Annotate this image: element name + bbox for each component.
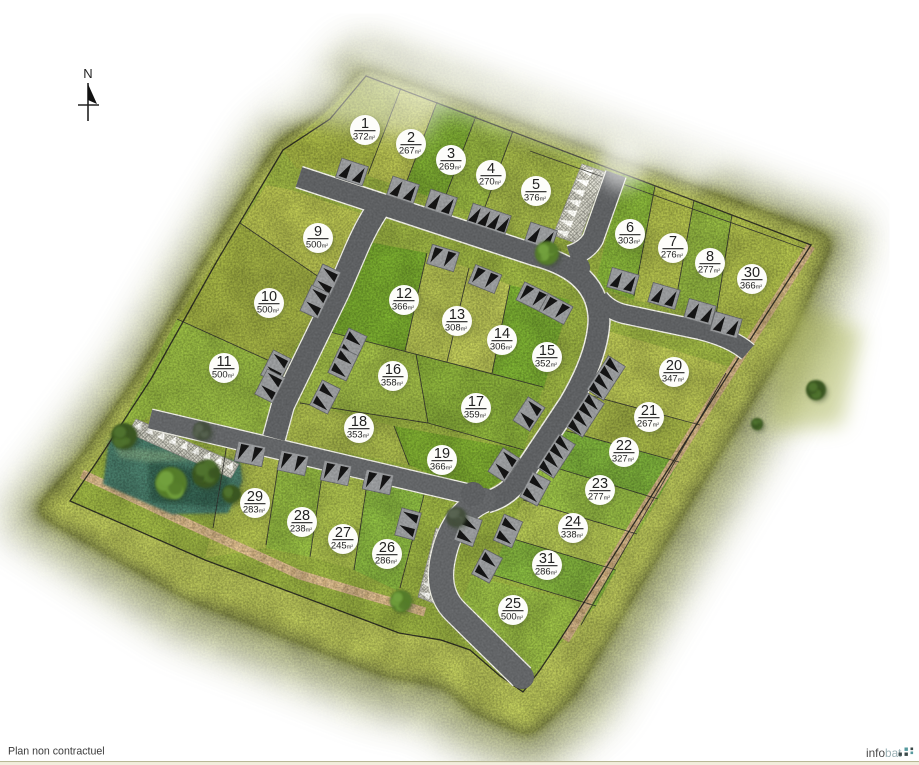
svg-text:27: 27 — [335, 525, 351, 541]
svg-text:15: 15 — [539, 343, 555, 359]
svg-text:26: 26 — [379, 540, 395, 556]
svg-text:Plan non contractuel: Plan non contractuel — [8, 746, 105, 758]
svg-text:4: 4 — [487, 161, 495, 177]
svg-text:21: 21 — [641, 403, 657, 419]
svg-text:infobat: infobat — [866, 746, 902, 760]
svg-text:19: 19 — [434, 446, 450, 462]
svg-text:17: 17 — [468, 394, 484, 410]
svg-text:20: 20 — [666, 358, 682, 374]
svg-text:9: 9 — [314, 224, 322, 240]
svg-text:24: 24 — [565, 514, 581, 530]
svg-text:18: 18 — [351, 414, 367, 430]
svg-text:22: 22 — [616, 438, 632, 454]
svg-text:1: 1 — [361, 116, 369, 132]
svg-text:23: 23 — [592, 476, 608, 492]
svg-text:N: N — [83, 66, 92, 81]
svg-text:8: 8 — [706, 249, 714, 265]
svg-text:31: 31 — [539, 551, 555, 567]
svg-text:7: 7 — [669, 234, 677, 250]
svg-text:29: 29 — [247, 489, 263, 505]
svg-text:5: 5 — [532, 177, 540, 193]
svg-text:14: 14 — [494, 326, 510, 342]
svg-text:28: 28 — [294, 508, 310, 524]
svg-text:2: 2 — [407, 130, 415, 146]
svg-text:16: 16 — [385, 362, 401, 378]
svg-text:10: 10 — [261, 289, 277, 305]
svg-text:11: 11 — [216, 354, 231, 370]
svg-text:6: 6 — [626, 220, 634, 236]
svg-text:3: 3 — [447, 146, 455, 162]
svg-text:25: 25 — [505, 596, 521, 612]
svg-text:12: 12 — [396, 286, 412, 302]
svg-text:13: 13 — [449, 307, 465, 323]
svg-text:30: 30 — [744, 265, 760, 281]
